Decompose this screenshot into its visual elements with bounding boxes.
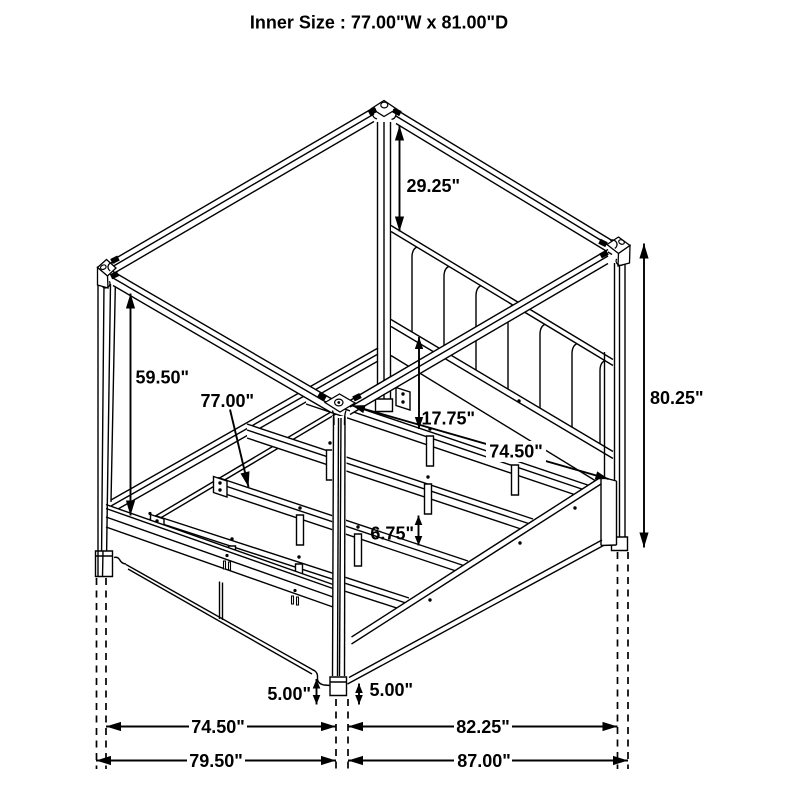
svg-text:82.25": 82.25" — [456, 717, 510, 737]
svg-text:80.25": 80.25" — [650, 388, 704, 408]
svg-text:74.50": 74.50" — [489, 442, 543, 462]
svg-text:59.50": 59.50" — [136, 368, 190, 388]
svg-text:5.00": 5.00" — [267, 684, 311, 704]
svg-text:87.00": 87.00" — [457, 751, 511, 771]
svg-text:6.75": 6.75" — [370, 524, 414, 544]
svg-text:Inner Size : 77.00"W x 81.00"D: Inner Size : 77.00"W x 81.00"D — [250, 13, 508, 33]
svg-text:74.50": 74.50" — [191, 717, 245, 737]
svg-text:77.00": 77.00" — [201, 391, 255, 411]
svg-text:79.50": 79.50" — [189, 751, 243, 771]
svg-text:17.75": 17.75" — [422, 409, 476, 429]
svg-text:5.00": 5.00" — [370, 680, 414, 700]
svg-text:29.25": 29.25" — [407, 176, 461, 196]
